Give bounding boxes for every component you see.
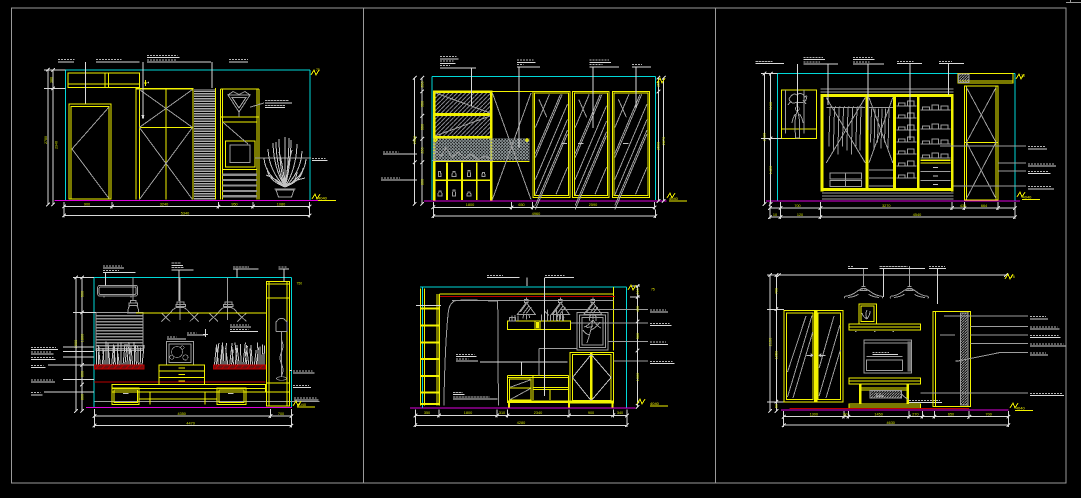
svg-text:60: 60 [843,413,847,417]
svg-text:4040: 4040 [1023,195,1033,200]
svg-text:5340: 5340 [181,211,189,215]
svg-text:650: 650 [518,203,524,207]
svg-text:700: 700 [986,413,992,417]
svg-text:650: 650 [948,413,954,417]
svg-text:1100: 1100 [769,102,773,110]
svg-text:2520: 2520 [413,136,417,144]
svg-text:500: 500 [80,291,84,297]
svg-text:2520: 2520 [763,133,767,141]
svg-text:75: 75 [1021,74,1025,78]
svg-text:2590: 2590 [657,142,661,150]
svg-text:3240: 3240 [160,202,168,206]
svg-text:240: 240 [636,288,640,294]
svg-text:4040: 4040 [297,402,307,407]
svg-text:900: 900 [588,411,594,415]
svg-text:10: 10 [773,213,777,217]
svg-text:340: 340 [617,411,623,415]
svg-text:2870: 2870 [662,137,666,145]
svg-text:4040: 4040 [318,196,328,201]
svg-text:900: 900 [84,202,90,206]
svg-text:1060: 1060 [636,373,640,381]
svg-text:700: 700 [794,204,800,208]
svg-text:350: 350 [424,411,430,415]
svg-text:4470: 4470 [186,421,194,425]
svg-text:664: 664 [981,204,987,208]
svg-text:4040: 4040 [1016,406,1026,411]
svg-text:2340: 2340 [534,411,542,415]
svg-text:2340: 2340 [55,141,59,149]
svg-text:230: 230 [420,147,424,153]
svg-text:310: 310 [499,411,505,415]
svg-text:4350: 4350 [177,412,185,416]
svg-text:3270: 3270 [882,204,890,208]
svg-text:950: 950 [420,101,424,107]
svg-text:4280: 4280 [517,421,525,425]
svg-text:2590: 2590 [589,203,597,207]
svg-text:700: 700 [775,288,779,294]
svg-text:1450: 1450 [874,413,882,417]
svg-text:1300: 1300 [810,413,818,417]
svg-text:1800: 1800 [464,411,472,415]
svg-text:1950: 1950 [775,351,779,359]
svg-text:800: 800 [420,179,424,185]
svg-text:1800: 1800 [80,334,84,342]
svg-text:550: 550 [420,124,424,130]
svg-text:75: 75 [1011,275,1015,279]
svg-text:270: 270 [912,413,918,417]
svg-text:700: 700 [278,412,284,416]
svg-text:1800: 1800 [466,203,474,207]
svg-text:4040: 4040 [669,196,679,201]
svg-text:75: 75 [316,68,320,72]
svg-text:4540: 4540 [913,213,921,217]
svg-text:250: 250 [420,81,424,87]
svg-text:950: 950 [231,202,237,206]
svg-text:490: 490 [636,306,640,312]
svg-text:750: 750 [297,282,303,286]
svg-text:60: 60 [775,404,779,408]
svg-text:4960: 4960 [532,212,540,216]
svg-text:75: 75 [651,288,655,292]
svg-text:380: 380 [49,77,53,83]
svg-text:580: 580 [636,333,640,339]
svg-text:430: 430 [960,204,966,208]
svg-text:600: 600 [80,371,84,377]
svg-text:1080: 1080 [277,202,285,206]
svg-text:120: 120 [797,213,803,217]
svg-text:2150: 2150 [768,338,772,346]
svg-text:4630: 4630 [886,421,894,425]
svg-text:1420: 1420 [769,166,773,174]
svg-text:600: 600 [80,394,84,400]
svg-text:4040: 4040 [650,401,660,406]
svg-text:2780: 2780 [44,136,48,144]
